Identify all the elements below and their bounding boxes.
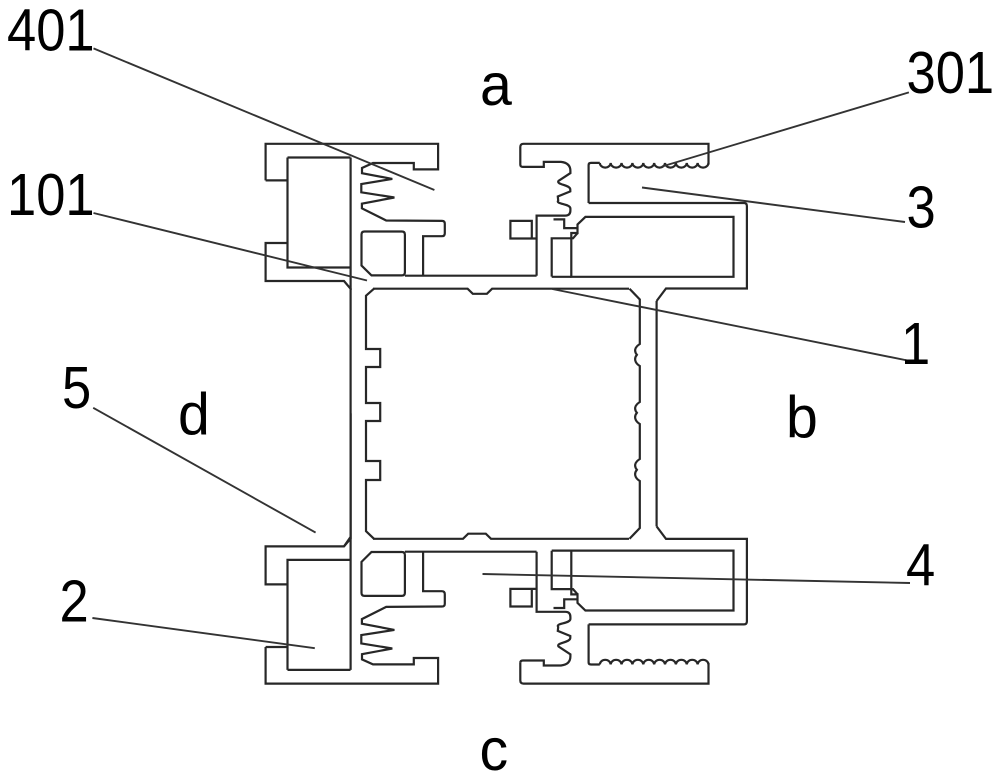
svg-text:2: 2 [60, 567, 89, 634]
svg-text:4: 4 [906, 532, 935, 599]
svg-text:c: c [480, 717, 509, 775]
svg-text:3: 3 [907, 173, 936, 240]
svg-text:d: d [178, 382, 210, 448]
svg-text:5: 5 [62, 354, 91, 421]
svg-text:b: b [786, 385, 818, 451]
svg-text:301: 301 [907, 39, 995, 106]
svg-text:1: 1 [901, 310, 930, 377]
svg-text:401: 401 [7, 0, 95, 63]
svg-text:a: a [480, 52, 512, 118]
svg-text:101: 101 [7, 161, 95, 228]
